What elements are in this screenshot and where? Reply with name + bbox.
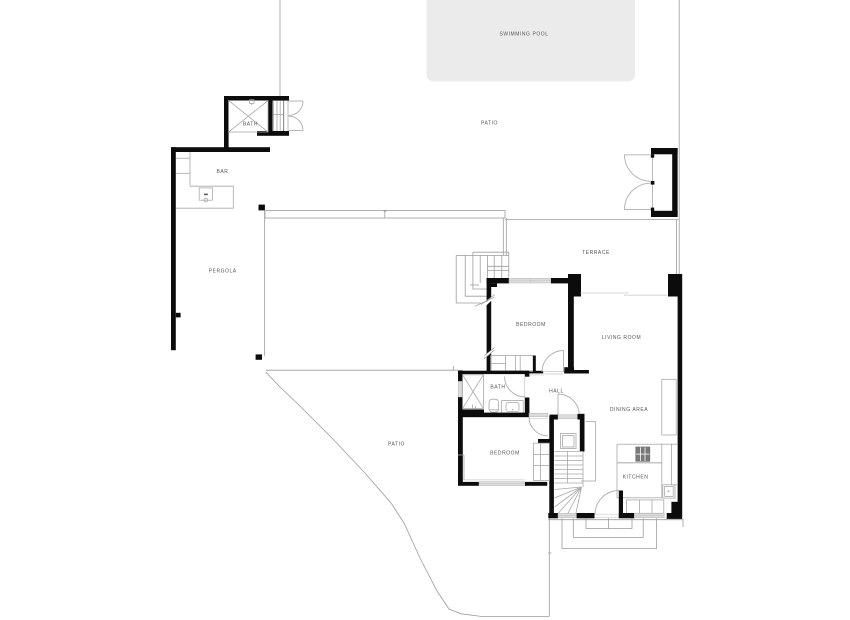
svg-text:BEDROOM: BEDROOM <box>516 322 546 328</box>
svg-text:BEDROOM: BEDROOM <box>490 451 520 457</box>
svg-text:LIVING ROOM: LIVING ROOM <box>602 335 641 341</box>
svg-text:BATH: BATH <box>243 122 258 128</box>
svg-text:PATIO: PATIO <box>388 442 405 448</box>
svg-text:SWIMMING POOL: SWIMMING POOL <box>499 32 548 38</box>
svg-text:PATIO: PATIO <box>481 121 498 127</box>
svg-text:BAR: BAR <box>217 169 229 175</box>
svg-text:PERGOLA: PERGOLA <box>209 269 237 275</box>
svg-text:HALL: HALL <box>549 389 564 395</box>
svg-text:KITCHEN: KITCHEN <box>623 475 649 481</box>
svg-text:BATH: BATH <box>490 385 505 391</box>
svg-text:DINING AREA: DINING AREA <box>610 407 648 413</box>
svg-text:TERRACE: TERRACE <box>582 250 610 256</box>
